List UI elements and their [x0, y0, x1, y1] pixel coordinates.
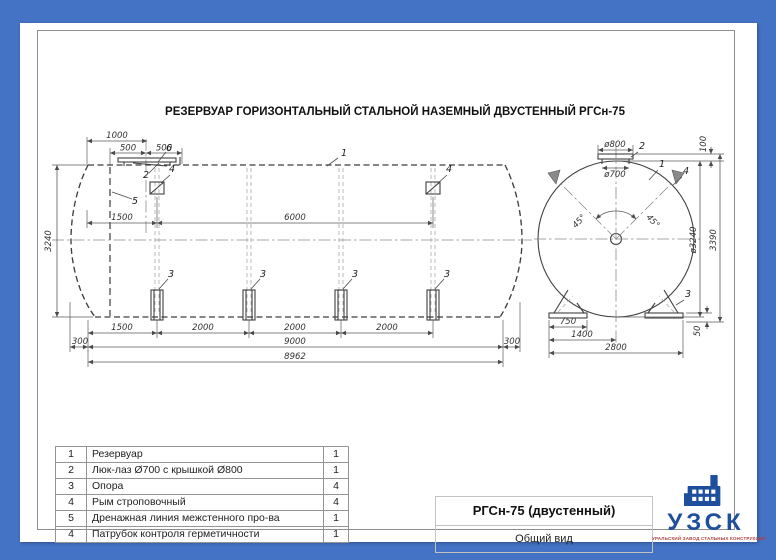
table-row: 1 Резервуар 1 [56, 447, 349, 463]
lug-left [548, 170, 560, 184]
part-name: Опора [87, 479, 324, 495]
table-row: 3 Опора 4 [56, 479, 349, 495]
logo-caption: УРАЛЬСКИЙ ЗАВОД СТАЛЬНЫХ КОНСТРУКЦИЙ [652, 537, 756, 542]
part-num: 4 [56, 527, 87, 543]
dim-3240: 3240 [44, 230, 54, 252]
callout-tank-end: 1 [659, 159, 665, 170]
dim-6000: 6000 [284, 213, 306, 223]
part-qty: 4 [324, 479, 349, 495]
table-row: 4 Рым строповочный 4 [56, 495, 349, 511]
side-view: 1000 500 500 1500 6000 3240 1500 2000 20… [44, 131, 532, 367]
part-num: 5 [56, 511, 87, 527]
dim-500-left: 500 [120, 144, 136, 154]
dim-45-right: 45° [644, 213, 662, 231]
dim-2800: 2800 [605, 343, 627, 353]
callout-lug-end: 4 [683, 166, 689, 177]
dim-1500-top: 1500 [111, 213, 133, 223]
part-num: 4 [56, 495, 87, 511]
logo-abbr: УЗСК [656, 511, 756, 535]
blue-frame: РЕЗЕРВУАР ГОРИЗОНТАЛЬНЫЙ СТАЛЬНОЙ НАЗЕМН… [0, 0, 776, 560]
parts-table: 1 Резервуар 1 2 Люк-лаз Ø700 с крышкой Ø… [55, 446, 349, 543]
part-name: Люк-лаз Ø700 с крышкой Ø800 [87, 463, 324, 479]
dim-300-left: 300 [72, 337, 88, 347]
title-block-model: РГСн-75 (двустенный) [436, 497, 652, 526]
drawing-sheet: РЕЗЕРВУАР ГОРИЗОНТАЛЬНЫЙ СТАЛЬНОЙ НАЗЕМН… [20, 23, 757, 542]
end-view: ø800 ø700 100 ø3240 3390 50 750 1400 280… [534, 136, 724, 358]
callout-support-1: 3 [168, 269, 174, 280]
table-row: 2 Люк-лаз Ø700 с крышкой Ø800 1 [56, 463, 349, 479]
dim-9000: 9000 [284, 337, 306, 347]
callout-support-2: 3 [260, 269, 266, 280]
tank-outline [71, 165, 522, 317]
callout-tank: 1 [341, 148, 347, 159]
dim-2000-2: 2000 [284, 323, 306, 333]
callout-manhole-end: 2 [639, 141, 645, 152]
part-name: Рым строповочный [87, 495, 324, 511]
callout-manhole: 2 [143, 170, 149, 181]
dim-2000-1: 2000 [192, 323, 214, 333]
part-qty: 1 [324, 463, 349, 479]
company-logo: УЗСК УРАЛЬСКИЙ ЗАВОД СТАЛЬНЫХ КОНСТРУКЦИ… [652, 475, 756, 542]
supports-side [151, 290, 439, 320]
callout-support-3: 3 [352, 269, 358, 280]
dim-1000: 1000 [106, 131, 128, 141]
part-name: Дренажная линия межстенного про-ва [87, 511, 324, 527]
dim-50: 50 [693, 326, 703, 337]
dim-100: 100 [699, 136, 709, 152]
dim-1400: 1400 [571, 330, 593, 340]
part-qty: 4 [324, 495, 349, 511]
part-name: Резервуар [87, 447, 324, 463]
dim-8962: 8962 [284, 352, 306, 362]
title-block-view-name: Общий вид [436, 526, 652, 553]
callout-drain: 5 [132, 196, 138, 207]
callout-support-end: 3 [685, 289, 691, 300]
part-num: 2 [56, 463, 87, 479]
dim-d700: ø700 [603, 170, 625, 180]
factory-icon [684, 475, 724, 506]
title-block: РГСн-75 (двустенный) Общий вид [435, 496, 653, 553]
dim-1500-bottom: 1500 [111, 323, 133, 333]
callout-leaders-side [112, 152, 447, 289]
dim-300-right: 300 [504, 337, 520, 347]
part-qty: 1 [324, 511, 349, 527]
lifting-lugs-side [150, 182, 440, 194]
dim-d3240: ø3240 [689, 227, 699, 255]
table-row: 4 Патрубок контроля герметичности 1 [56, 527, 349, 543]
part-num: 3 [56, 479, 87, 495]
part-qty: 1 [324, 527, 349, 543]
table-row: 5 Дренажная линия межстенного про-ва 1 [56, 511, 349, 527]
dim-45-left: 45° [571, 213, 589, 231]
callout-nozzle: 6 [166, 143, 172, 154]
callout-support-4: 3 [444, 269, 450, 280]
dim-3390: 3390 [709, 229, 719, 251]
part-num: 1 [56, 447, 87, 463]
part-qty: 1 [324, 447, 349, 463]
dim-d800: ø800 [603, 140, 625, 150]
dim-2000-3: 2000 [376, 323, 398, 333]
part-name: Патрубок контроля герметичности [87, 527, 324, 543]
dim-750: 750 [560, 317, 576, 327]
callout-lug-left: 4 [169, 164, 175, 175]
callout-lug-right: 4 [446, 164, 452, 175]
